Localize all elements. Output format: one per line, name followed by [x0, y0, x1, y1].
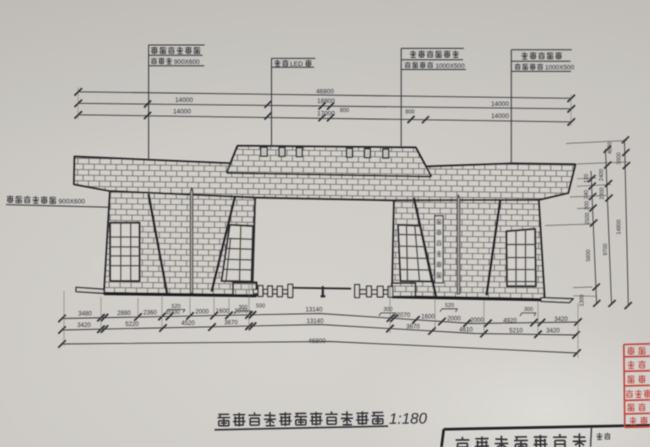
svg-text:5210: 5210: [509, 327, 523, 334]
svg-text:520: 520: [172, 304, 181, 310]
svg-text:13140: 13140: [307, 318, 325, 325]
svg-text:4920: 4920: [503, 317, 517, 324]
svg-text:3420: 3420: [554, 316, 568, 323]
svg-text:300: 300: [384, 307, 393, 313]
svg-text:2300: 2300: [600, 188, 606, 200]
svg-text:LED: LED: [290, 61, 303, 68]
svg-text:14000: 14000: [491, 113, 509, 120]
svg-text:120: 120: [584, 174, 590, 183]
svg-text:13140: 13140: [306, 307, 324, 314]
svg-text:14800: 14800: [617, 220, 623, 235]
svg-text:14000: 14000: [491, 101, 509, 108]
svg-text:1000X500: 1000X500: [436, 63, 466, 70]
svg-text:300: 300: [239, 305, 248, 311]
svg-text:2880: 2880: [117, 310, 131, 317]
svg-text:4520: 4520: [181, 320, 195, 327]
svg-text:3420: 3420: [77, 322, 91, 329]
svg-text:500: 500: [256, 304, 265, 310]
svg-text:800: 800: [405, 110, 414, 116]
svg-text:3480: 3480: [78, 311, 92, 318]
svg-text:2500: 2500: [585, 213, 591, 225]
svg-text:2000: 2000: [195, 308, 209, 315]
svg-text:14000: 14000: [175, 97, 193, 104]
svg-text:5600: 5600: [586, 250, 592, 262]
svg-text:3000: 3000: [617, 153, 623, 165]
svg-text:520: 520: [445, 303, 454, 309]
svg-text:18800: 18800: [317, 98, 335, 105]
svg-text:2000: 2000: [470, 317, 484, 324]
svg-text:9700: 9700: [603, 244, 609, 256]
svg-text:4800: 4800: [608, 142, 614, 154]
svg-text:3420: 3420: [546, 328, 560, 335]
svg-text:4610: 4610: [459, 326, 473, 333]
svg-text:2000: 2000: [166, 309, 180, 316]
svg-text:1300: 1300: [580, 295, 586, 307]
svg-text:46800: 46800: [308, 338, 326, 345]
svg-text:3670: 3670: [406, 323, 420, 330]
svg-text:1600: 1600: [421, 314, 435, 321]
svg-text:14000: 14000: [173, 109, 191, 116]
svg-text:2400: 2400: [599, 169, 605, 181]
svg-text:3670: 3670: [224, 319, 238, 326]
svg-text:1000X500: 1000X500: [545, 65, 575, 72]
svg-text:900X600: 900X600: [59, 199, 86, 206]
svg-text:300: 300: [585, 201, 591, 210]
svg-text:1600: 1600: [216, 308, 230, 315]
svg-text:2070: 2070: [397, 312, 411, 319]
svg-text:800: 800: [340, 108, 349, 114]
svg-text:2000: 2000: [447, 315, 461, 322]
svg-text:17000: 17000: [317, 110, 335, 117]
svg-text:2360: 2360: [143, 309, 157, 316]
svg-text:240: 240: [584, 190, 590, 199]
svg-text:900X600: 900X600: [174, 59, 200, 66]
svg-text:46800: 46800: [316, 89, 334, 96]
svg-text:300: 300: [524, 307, 533, 313]
svg-text:1:180: 1:180: [389, 410, 428, 427]
svg-text:5220: 5220: [125, 321, 139, 328]
